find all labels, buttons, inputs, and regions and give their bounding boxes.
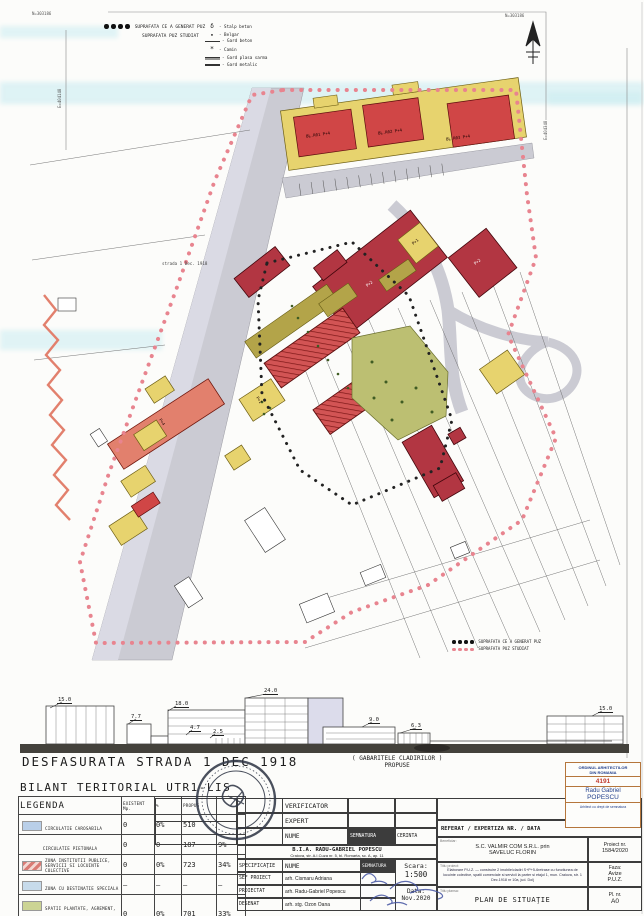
map-legend-top: SUPRAFATA CE A GENERAT PUZ SUPRAFATA PUZ… [104, 24, 304, 40]
signature-cell [360, 898, 396, 911]
belgar-icon: ▪ [205, 33, 219, 37]
bia-cell: B.I.A. RADU-GABRIEL POPESCU Craiova, str… [237, 845, 437, 859]
nume2-cell: NUME [282, 859, 361, 872]
black-dot-icon [104, 24, 109, 29]
row-swatch [22, 881, 42, 891]
green-space [352, 326, 448, 440]
legend-studiat-label: SUPRAFATA PUZ STUDIAT [142, 34, 199, 39]
proiect-nr-cell: Proiect nr. 1584/2020 [588, 837, 642, 862]
gard-metalic-icon [205, 64, 220, 66]
oar-stamp: ORDINUL ARHITECTILOR DIN ROMANIA 4191 Ra… [565, 762, 641, 828]
coord-right: E=404348 [544, 121, 548, 140]
legend-row-generat: SUPRAFATA CE A GENERAT PUZ [104, 24, 304, 31]
signature-cell [360, 872, 396, 885]
map-legend-symbols: δ- Stalp beton ▪- Belgar - Gard beton *-… [205, 24, 267, 68]
beneficiar-label: Beneficiar: [440, 839, 457, 843]
data-cell: Data: Nov.2020 [395, 885, 437, 911]
signature-cell [360, 885, 396, 898]
specificatie-cell: SPECIFICAŢIE [237, 859, 283, 872]
empty-cell [395, 798, 437, 813]
gabarite-note: ( GABARITELE CLADIRILOR ) PROPUSE [352, 756, 442, 770]
legend-generat-label: SUPRAFATA CE A GENERAT PUZ [478, 639, 541, 644]
titlu-plansa-label: Titlu plansa: [440, 889, 459, 893]
desenat-cell: arh. stg. Ozon Oana [282, 898, 361, 911]
empty-cell [348, 798, 395, 813]
embankment-zigzag [44, 295, 70, 520]
elevation-title: DESFASURATA STRADA 1 DEC 1918 [22, 755, 298, 769]
beneficiar-cell: Beneficiar: S.C. VALMIR COM S.R.L. prin … [437, 837, 588, 862]
empty-cell [155, 821, 237, 845]
height-label: 9.0 [368, 717, 380, 724]
semnatura2-cell: SEMNATURA [360, 859, 396, 872]
verificator-cell: VERIFICATOR [282, 798, 348, 813]
cerinta-header-cell: CERINTA [395, 828, 437, 845]
titlu-proiect-label: Titlu proiect: [440, 864, 459, 868]
empty-cell [237, 798, 283, 813]
proiectat-cell: arh. Radu-Gabriel Popescu [282, 885, 361, 898]
table-row: SPATII PLANTATE, AGREMENT, SPORT 0 0% 70… [19, 895, 246, 916]
table-row: ZONA CU DESTINATIE SPECIALA – – – – [19, 875, 246, 895]
height-label: 18.0 [174, 701, 189, 708]
street-name-label: strada 1 Dec. 1918 [162, 262, 207, 267]
height-label: 2.5 [212, 729, 224, 736]
desenat-label-cell: DESENAT [237, 898, 283, 911]
titlu-proiect-cell: Titlu proiect: Elaborare P.U.Z. — constr… [437, 862, 588, 887]
col-existent: EXISTENT Mp. [122, 797, 155, 815]
north-arrow-icon [526, 22, 540, 64]
streets [92, 88, 534, 660]
expert-cell: EXPERT [282, 813, 348, 828]
height-label: 4.7 [189, 725, 201, 732]
camin-icon: * [205, 46, 219, 54]
plan-sheet: N=303186 N=303186 E=404148 E=404348 stra… [0, 0, 644, 916]
empty-cell [237, 813, 283, 828]
sef-proiect-cell: arh. Cismaru Adriana [282, 872, 361, 885]
legend-studiat-label: SUPRAFATA PUZ STUDIAT [478, 646, 529, 651]
empty-cell [395, 813, 437, 828]
table-row: ZONA INSTITUTII PUBLICE, SERVICII SI LOC… [19, 855, 246, 875]
titlu-plansa-cell: Titlu plansa: PLAN DE SITUAŢIE [437, 887, 588, 911]
row-swatch [22, 901, 42, 911]
empty-cell [348, 813, 395, 828]
row-swatch [22, 861, 42, 871]
map-legend-bottom: SUPRAFATA CE A GENERAT PUZ SUPRAFATA PUZ… [452, 640, 541, 652]
height-label: 15.0 [57, 697, 72, 704]
legend-generat-label: SUPRAFATA CE A GENERAT PUZ [135, 25, 205, 30]
nume-header-cell: NUME [282, 828, 348, 845]
pl-nr-cell: Pl. nr. A0 [588, 887, 642, 911]
sef-proiect-label-cell: SEF PROIECT [237, 872, 283, 885]
pink-dot-icon [452, 648, 456, 652]
elevation-drawing [20, 694, 629, 753]
height-label: 24.0 [263, 688, 278, 695]
stalp-beton-icon: δ [205, 24, 219, 31]
height-label: 7.7 [130, 714, 142, 721]
empty-cell [155, 798, 237, 822]
empty-cell [237, 828, 283, 845]
scara-cell: Scara: 1:500 [395, 859, 437, 885]
height-label: 15.0 [598, 706, 613, 713]
row-swatch [22, 821, 42, 831]
coord-top-left: N=303186 [32, 12, 51, 16]
faza-cell: Faza: Avize P.U.Z. [588, 862, 642, 887]
proiectat-label-cell: PROIECTAT [237, 885, 283, 898]
height-label: 6.3 [410, 723, 422, 730]
semnatura-header-cell: SEMNATURA [348, 828, 395, 845]
coord-top-right: N=303186 [505, 14, 524, 18]
bilant-title: BILANT TERITORIAL UTR1-LIS [20, 782, 231, 794]
coord-left: E=404148 [58, 89, 62, 108]
gard-plasa-icon [205, 57, 220, 58]
gard-beton-icon [205, 41, 220, 42]
col-legenda: LEGENDA [19, 797, 122, 815]
black-dot-icon [452, 640, 456, 644]
